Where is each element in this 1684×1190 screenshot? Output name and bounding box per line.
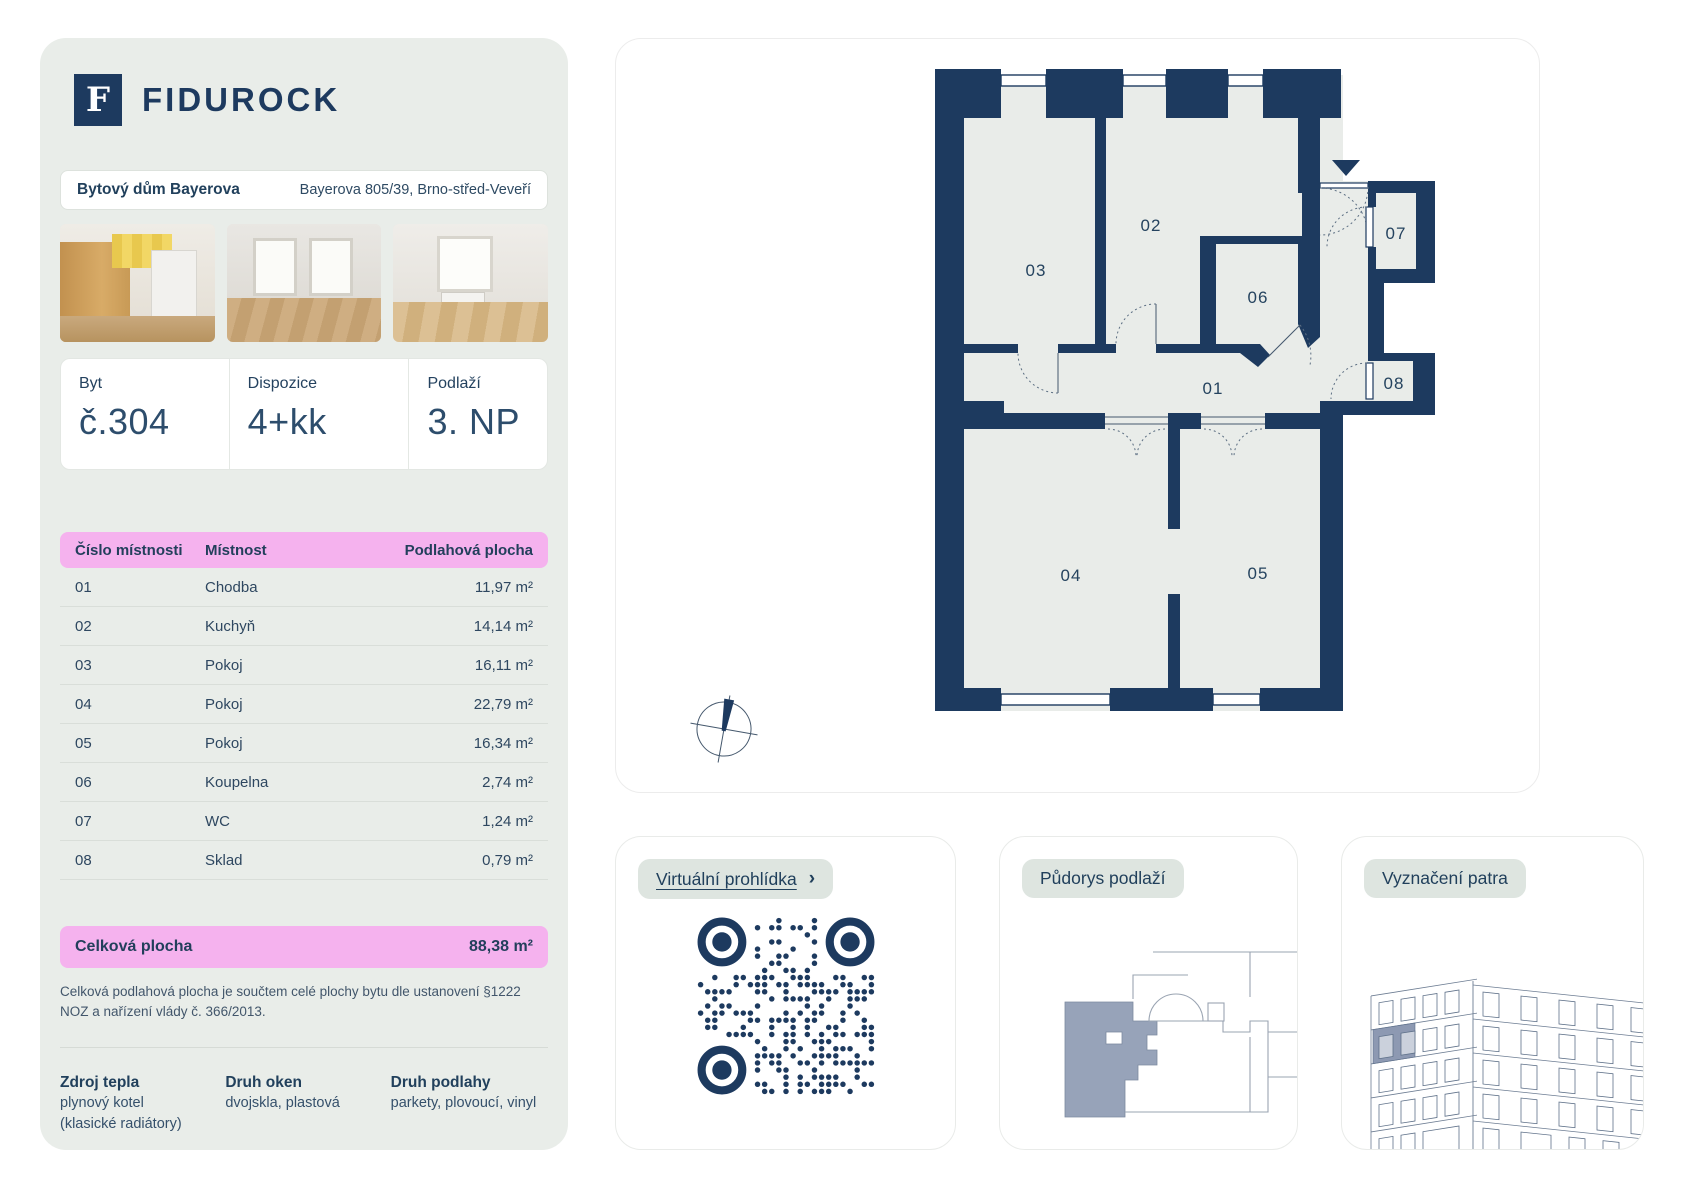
unit-number-label: Byt <box>79 375 229 393</box>
floor-outline-svg <box>1018 937 1298 1149</box>
row-room: Koupelna <box>205 774 363 791</box>
virtual-tour-card: Virtuální prohlídka › <box>615 836 956 1150</box>
row-area: 11,97 m² <box>363 579 533 596</box>
apartment-listing-page: F FIDUROCK Bytový dům Bayerova Bayerova … <box>0 0 1684 1190</box>
row-area: 0,79 m² <box>363 852 533 869</box>
room-label-06: 06 <box>1248 288 1269 307</box>
virtual-tour-link[interactable]: Virtuální prohlídka › <box>638 859 833 899</box>
room-label-01: 01 <box>1203 379 1224 398</box>
row-area: 14,14 m² <box>363 618 533 635</box>
room-label-05: 05 <box>1248 564 1269 583</box>
fidurock-logo-icon: F <box>74 74 122 126</box>
room-label-04: 04 <box>1061 566 1082 585</box>
listing-card: F FIDUROCK Bytový dům Bayerova Bayerova … <box>40 38 568 1150</box>
detail-value: plynový kotel <box>60 1094 217 1114</box>
row-room: Pokoj <box>205 657 363 674</box>
floor-outline-label: Půdorys podlaží <box>1040 868 1166 889</box>
unit-number-value: č.304 <box>79 401 229 443</box>
room-label-02: 02 <box>1141 216 1162 235</box>
table-row: 05 Pokoj 16,34 m² <box>60 724 548 763</box>
photo-gallery <box>60 224 548 342</box>
building-name: Bytový dům Bayerova <box>77 181 240 199</box>
row-number: 01 <box>75 579 205 596</box>
row-area: 16,11 m² <box>363 657 533 674</box>
building-address: Bayerova 805/39, Brno-střed-Veveří <box>300 182 531 198</box>
qr-code <box>638 915 933 1097</box>
row-room: Kuchyň <box>205 618 363 635</box>
floor-outline-pill: Půdorys podlaží <box>1022 859 1184 898</box>
area-footnote: Celková podlahová plocha je součtem celé… <box>60 982 544 1023</box>
floor-outline-card: Půdorys podlaží <box>999 836 1298 1150</box>
row-room: Pokoj <box>205 696 363 713</box>
unit-layout-label: Dispozice <box>248 375 409 393</box>
brand-logo: F FIDUROCK <box>74 74 548 126</box>
photo-room1-window-left <box>253 238 297 296</box>
chevron-right-icon: › <box>809 868 815 890</box>
building-bar: Bytový dům Bayerova Bayerova 805/39, Brn… <box>60 170 548 210</box>
detail-value: parkety, plovoucí, vinyl <box>391 1094 548 1114</box>
table-row: 06 Koupelna 2,74 m² <box>60 763 548 802</box>
col-header-room: Místnost <box>205 542 363 559</box>
photo-kitchen <box>60 224 215 342</box>
row-number: 03 <box>75 657 205 674</box>
detail-label: Zdroj tepla <box>60 1074 217 1092</box>
row-number: 07 <box>75 813 205 830</box>
row-area: 1,24 m² <box>363 813 533 830</box>
floorplan-svg: 01 02 03 04 05 06 07 08 <box>616 39 1539 792</box>
row-number: 02 <box>75 618 205 635</box>
property-details: Zdroj tepla plynový kotel (klasické radi… <box>60 1074 548 1135</box>
virtual-tour-label: Virtuální prohlídka <box>656 869 797 890</box>
detail-label: Druh oken <box>225 1074 382 1092</box>
unit-number-cell: Byt č.304 <box>61 359 229 469</box>
total-area-row: Celková plocha 88,38 m² <box>60 926 548 968</box>
compass-icon <box>685 690 764 769</box>
table-row: 01 Chodba 11,97 m² <box>60 568 548 607</box>
detail-floors: Druh podlahy parkety, plovoucí, vinyl <box>391 1074 548 1135</box>
row-room: WC <box>205 813 363 830</box>
row-number: 04 <box>75 696 205 713</box>
floor-marking-pill: Vyznačení patra <box>1364 859 1526 898</box>
detail-value: dvojskla, plastová <box>225 1094 382 1114</box>
row-area: 2,74 m² <box>363 774 533 791</box>
photo-room-radiator <box>393 224 548 342</box>
table-row: 03 Pokoj 16,11 m² <box>60 646 548 685</box>
unit-layout-cell: Dispozice 4+kk <box>229 359 409 469</box>
row-number: 08 <box>75 852 205 869</box>
floorplan-drawing: 01 02 03 04 05 06 07 08 <box>935 69 1435 711</box>
qr-code-svg <box>695 915 877 1097</box>
brand-name: FIDUROCK <box>142 81 340 119</box>
photo-room1-floor <box>227 298 382 342</box>
col-header-number: Číslo místnosti <box>75 542 205 559</box>
unit-info-panel: Byt č.304 Dispozice 4+kk Podlaží 3. NP <box>60 358 548 470</box>
room-label-08: 08 <box>1384 374 1405 393</box>
room-label-07: 07 <box>1386 224 1407 243</box>
row-area: 22,79 m² <box>363 696 533 713</box>
floor-marking-label: Vyznačení patra <box>1382 868 1508 889</box>
total-area-label: Celková plocha <box>75 938 192 956</box>
floor-marking-card: Vyznačení patra <box>1341 836 1644 1150</box>
unit-floor-label: Podlaží <box>427 375 547 393</box>
photo-room2-window <box>437 236 493 292</box>
rooms-table-header: Číslo místnosti Místnost Podlahová ploch… <box>60 532 548 568</box>
row-room: Sklad <box>205 852 363 869</box>
photo-kitchen-floor <box>60 316 215 342</box>
unit-floor-value: 3. NP <box>427 401 547 443</box>
photo-room-windows <box>227 224 382 342</box>
photo-room2-floor <box>393 302 548 342</box>
table-row: 08 Sklad 0,79 m² <box>60 841 548 880</box>
room-label-03: 03 <box>1026 261 1047 280</box>
col-header-area: Podlahová plocha <box>363 542 533 559</box>
floorplan-card: 01 02 03 04 05 06 07 08 <box>615 38 1540 793</box>
detail-value: (klasické radiátory) <box>60 1115 217 1135</box>
row-number: 05 <box>75 735 205 752</box>
total-area-value: 88,38 m² <box>469 938 533 956</box>
table-row: 07 WC 1,24 m² <box>60 802 548 841</box>
table-row: 04 Pokoj 22,79 m² <box>60 685 548 724</box>
row-room: Pokoj <box>205 735 363 752</box>
divider <box>60 1047 548 1048</box>
row-number: 06 <box>75 774 205 791</box>
detail-label: Druh podlahy <box>391 1074 548 1092</box>
unit-floor-cell: Podlaží 3. NP <box>408 359 547 469</box>
row-room: Chodba <box>205 579 363 596</box>
detail-windows: Druh oken dvojskla, plastová <box>225 1074 382 1135</box>
photo-room1-window-right <box>309 238 353 296</box>
building-sketch-svg <box>1361 937 1644 1150</box>
detail-heat-source: Zdroj tepla plynový kotel (klasické radi… <box>60 1074 217 1135</box>
unit-layout-value: 4+kk <box>248 401 409 443</box>
table-row: 02 Kuchyň 14,14 m² <box>60 607 548 646</box>
rooms-table: Číslo místnosti Místnost Podlahová ploch… <box>60 532 548 880</box>
row-area: 16,34 m² <box>363 735 533 752</box>
